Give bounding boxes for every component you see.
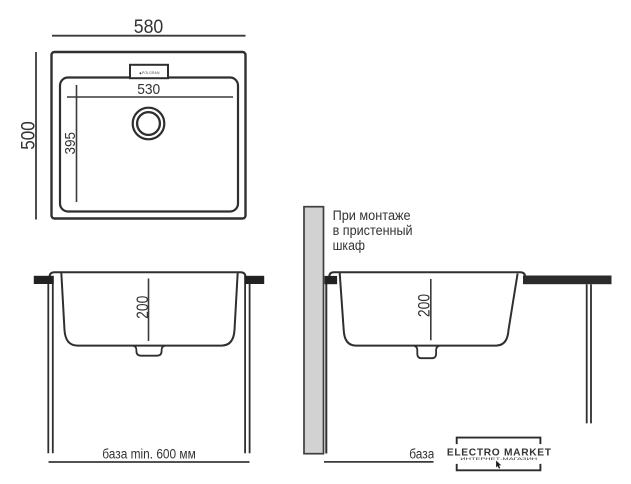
svg-text:395: 395 — [62, 132, 79, 155]
svg-text:база min. 600 мм: база min. 600 мм — [102, 447, 196, 463]
svg-text:◆POLGRAN: ◆POLGRAN — [139, 71, 160, 75]
svg-text:ИНТЕРНЕТ-МАГАЗИН: ИНТЕРНЕТ-МАГАЗИН — [460, 457, 537, 461]
svg-text:шкаф: шкаф — [333, 238, 366, 254]
svg-text:При монтаже: При монтаже — [333, 208, 411, 224]
svg-text:530: 530 — [137, 81, 160, 98]
svg-text:200: 200 — [414, 294, 433, 317]
svg-text:в пристенный: в пристенный — [333, 223, 413, 239]
svg-text:200: 200 — [133, 296, 152, 319]
